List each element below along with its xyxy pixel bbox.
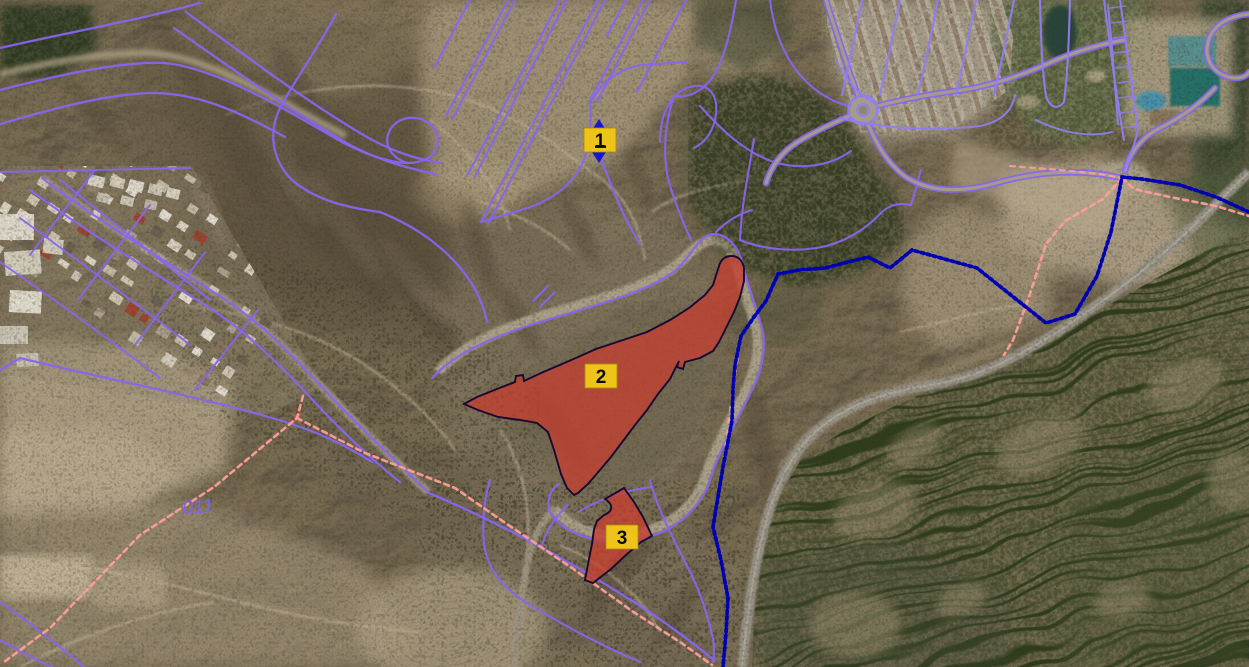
svg-text:1: 1 (595, 131, 606, 152)
svg-text:2: 2 (596, 367, 607, 388)
svg-text:3: 3 (617, 528, 628, 549)
svg-text:011: 011 (182, 496, 214, 519)
